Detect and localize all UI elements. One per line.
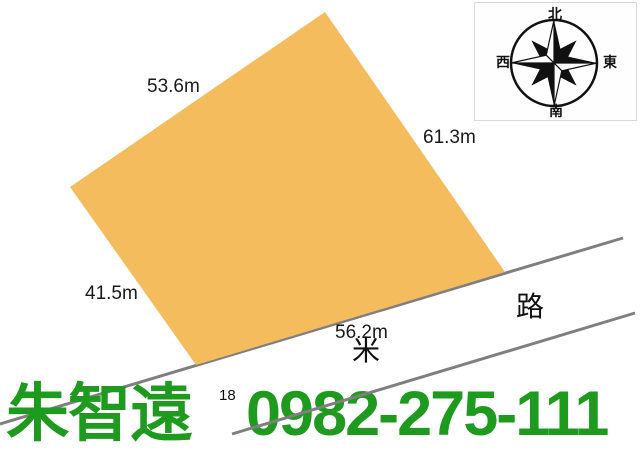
contact-layer: 朱智遠 0982-275-111	[0, 0, 640, 462]
site-plan-canvas: 53.6m 61.3m 41.5m 56.2m 米 路 18	[0, 0, 640, 462]
contact-name: 朱智遠	[6, 383, 192, 446]
contact-phone: 0982-275-111	[246, 383, 607, 446]
contact-line: 朱智遠 0982-275-111	[0, 383, 640, 453]
